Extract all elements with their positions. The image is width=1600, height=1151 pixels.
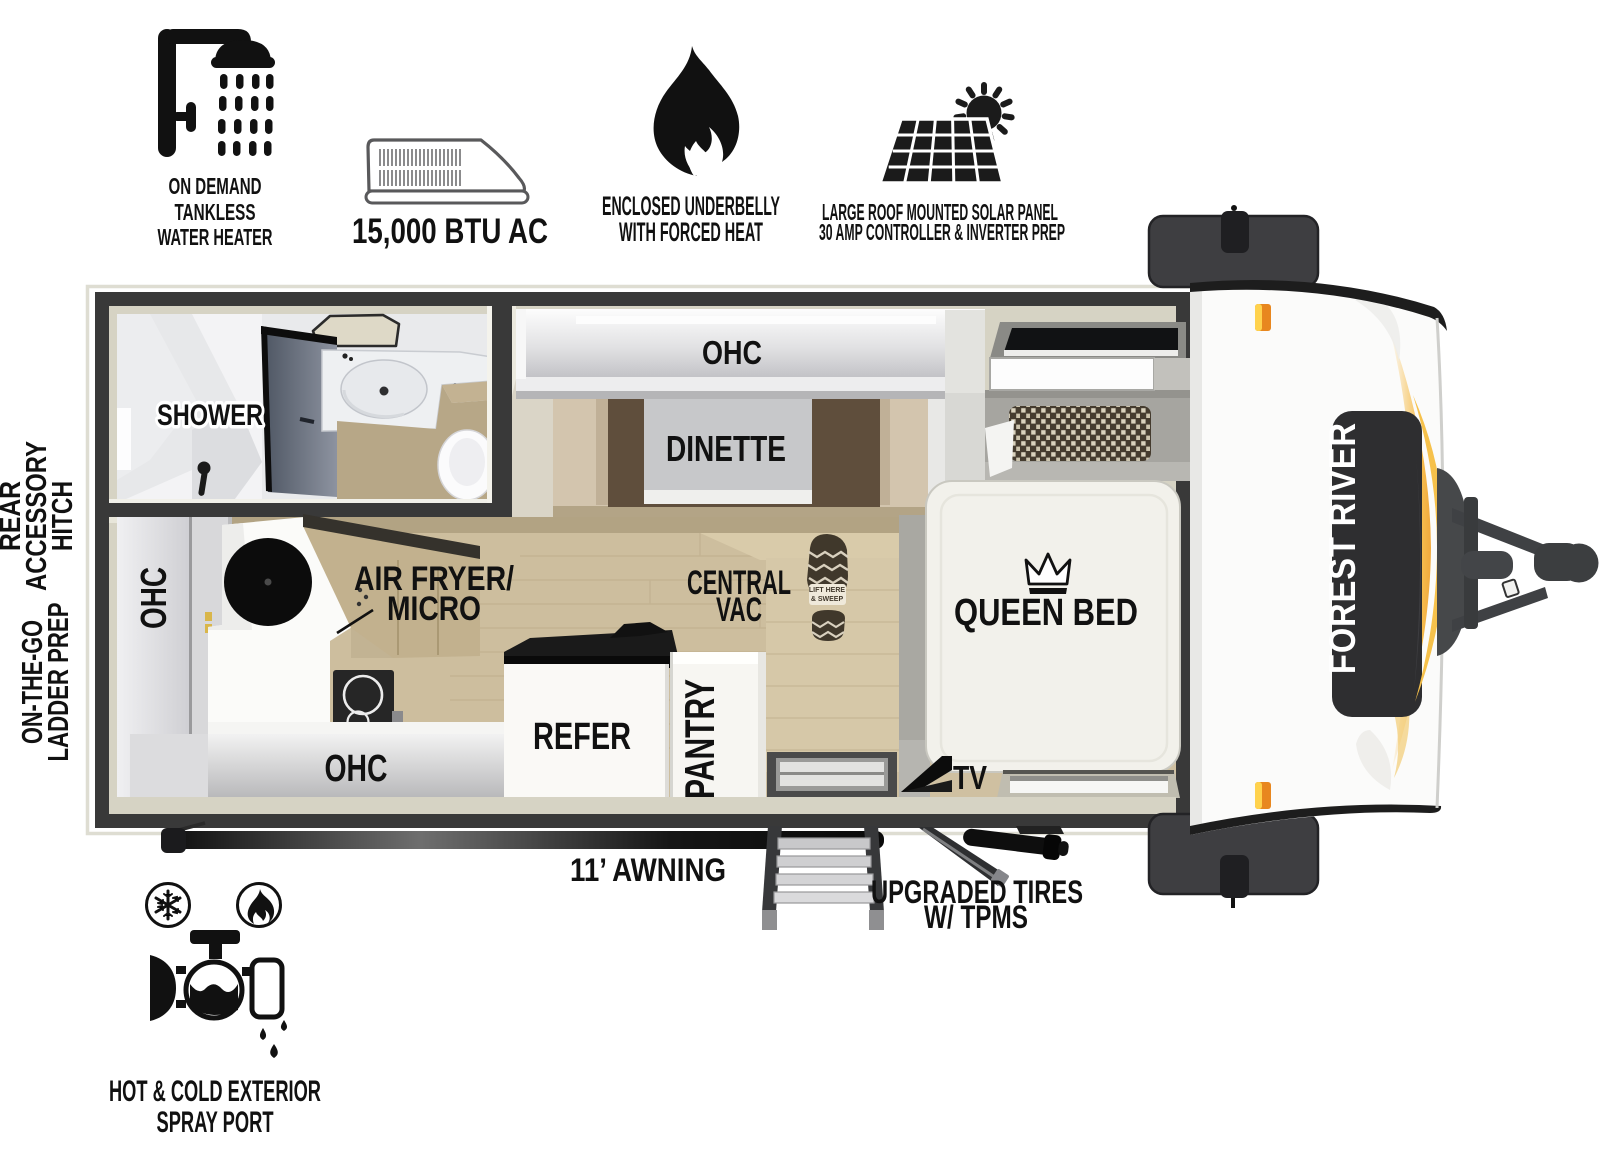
svg-text:TANKLESS: TANKLESS xyxy=(175,199,256,225)
svg-text:LIFT HERE: LIFT HERE xyxy=(809,587,845,594)
svg-text:W/ TPMS: W/ TPMS xyxy=(924,899,1028,935)
svg-text:PANTRY: PANTRY xyxy=(676,679,723,799)
svg-text:VAC: VAC xyxy=(716,591,762,629)
svg-text:HOT & COLD EXTERIOR: HOT & COLD EXTERIOR xyxy=(109,1075,321,1108)
svg-text:FOREST RIVER: FOREST RIVER xyxy=(1322,422,1363,674)
svg-text:& SWEEP: & SWEEP xyxy=(811,596,844,603)
svg-text:HITCH: HITCH xyxy=(47,481,79,551)
svg-text:SPRAY PORT: SPRAY PORT xyxy=(157,1106,274,1139)
svg-text:WATER HEATER: WATER HEATER xyxy=(158,224,273,250)
svg-text:LADDER PREP: LADDER PREP xyxy=(43,603,75,762)
svg-text:QUEEN BED: QUEEN BED xyxy=(954,592,1138,634)
svg-text:REFER: REFER xyxy=(533,716,631,758)
svg-text:SHOWER: SHOWER xyxy=(157,399,263,432)
svg-text:15,000 BTU AC: 15,000 BTU AC xyxy=(352,212,548,251)
svg-text:OHC: OHC xyxy=(702,334,762,371)
svg-text:OHC: OHC xyxy=(133,567,174,629)
svg-text:ON DEMAND: ON DEMAND xyxy=(169,173,262,199)
svg-text:WITH FORCED HEAT: WITH FORCED HEAT xyxy=(619,217,763,247)
svg-text:OHC: OHC xyxy=(325,748,388,790)
svg-text:MICRO: MICRO xyxy=(387,590,481,628)
svg-text:DINETTE: DINETTE xyxy=(666,428,786,469)
svg-text:TV: TV xyxy=(953,759,987,796)
svg-text:11’ AWNING: 11’ AWNING xyxy=(570,852,726,888)
svg-text:30 AMP CONTROLLER & INVERTER P: 30 AMP CONTROLLER & INVERTER PREP xyxy=(819,219,1065,245)
